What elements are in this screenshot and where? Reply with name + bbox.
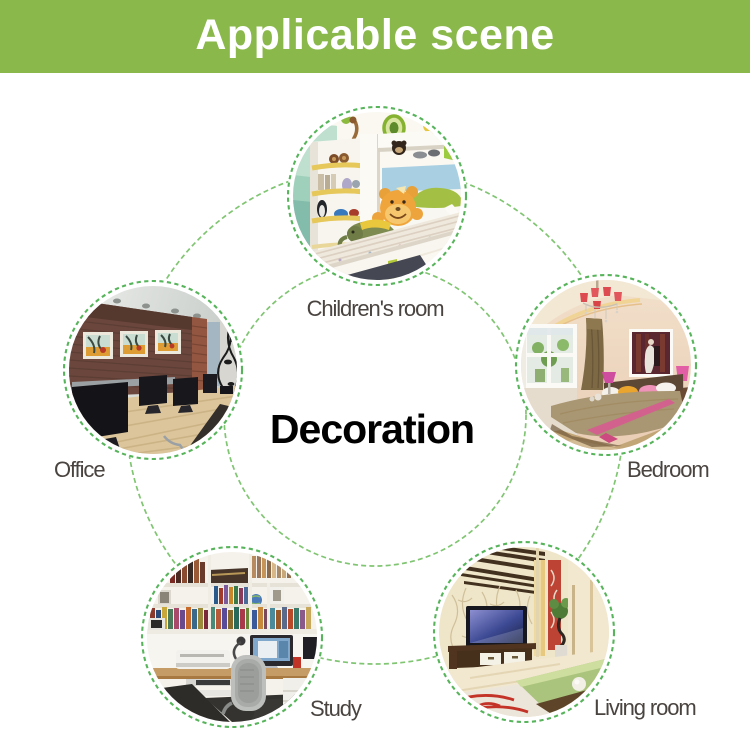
svg-text:Living room: Living room — [594, 695, 696, 720]
svg-text:Bedroom: Bedroom — [627, 457, 709, 482]
svg-text:Decoration: Decoration — [270, 406, 474, 452]
svg-text:Study: Study — [310, 696, 362, 721]
svg-text:Children's room: Children's room — [307, 296, 444, 321]
svg-text:Office: Office — [54, 457, 105, 482]
